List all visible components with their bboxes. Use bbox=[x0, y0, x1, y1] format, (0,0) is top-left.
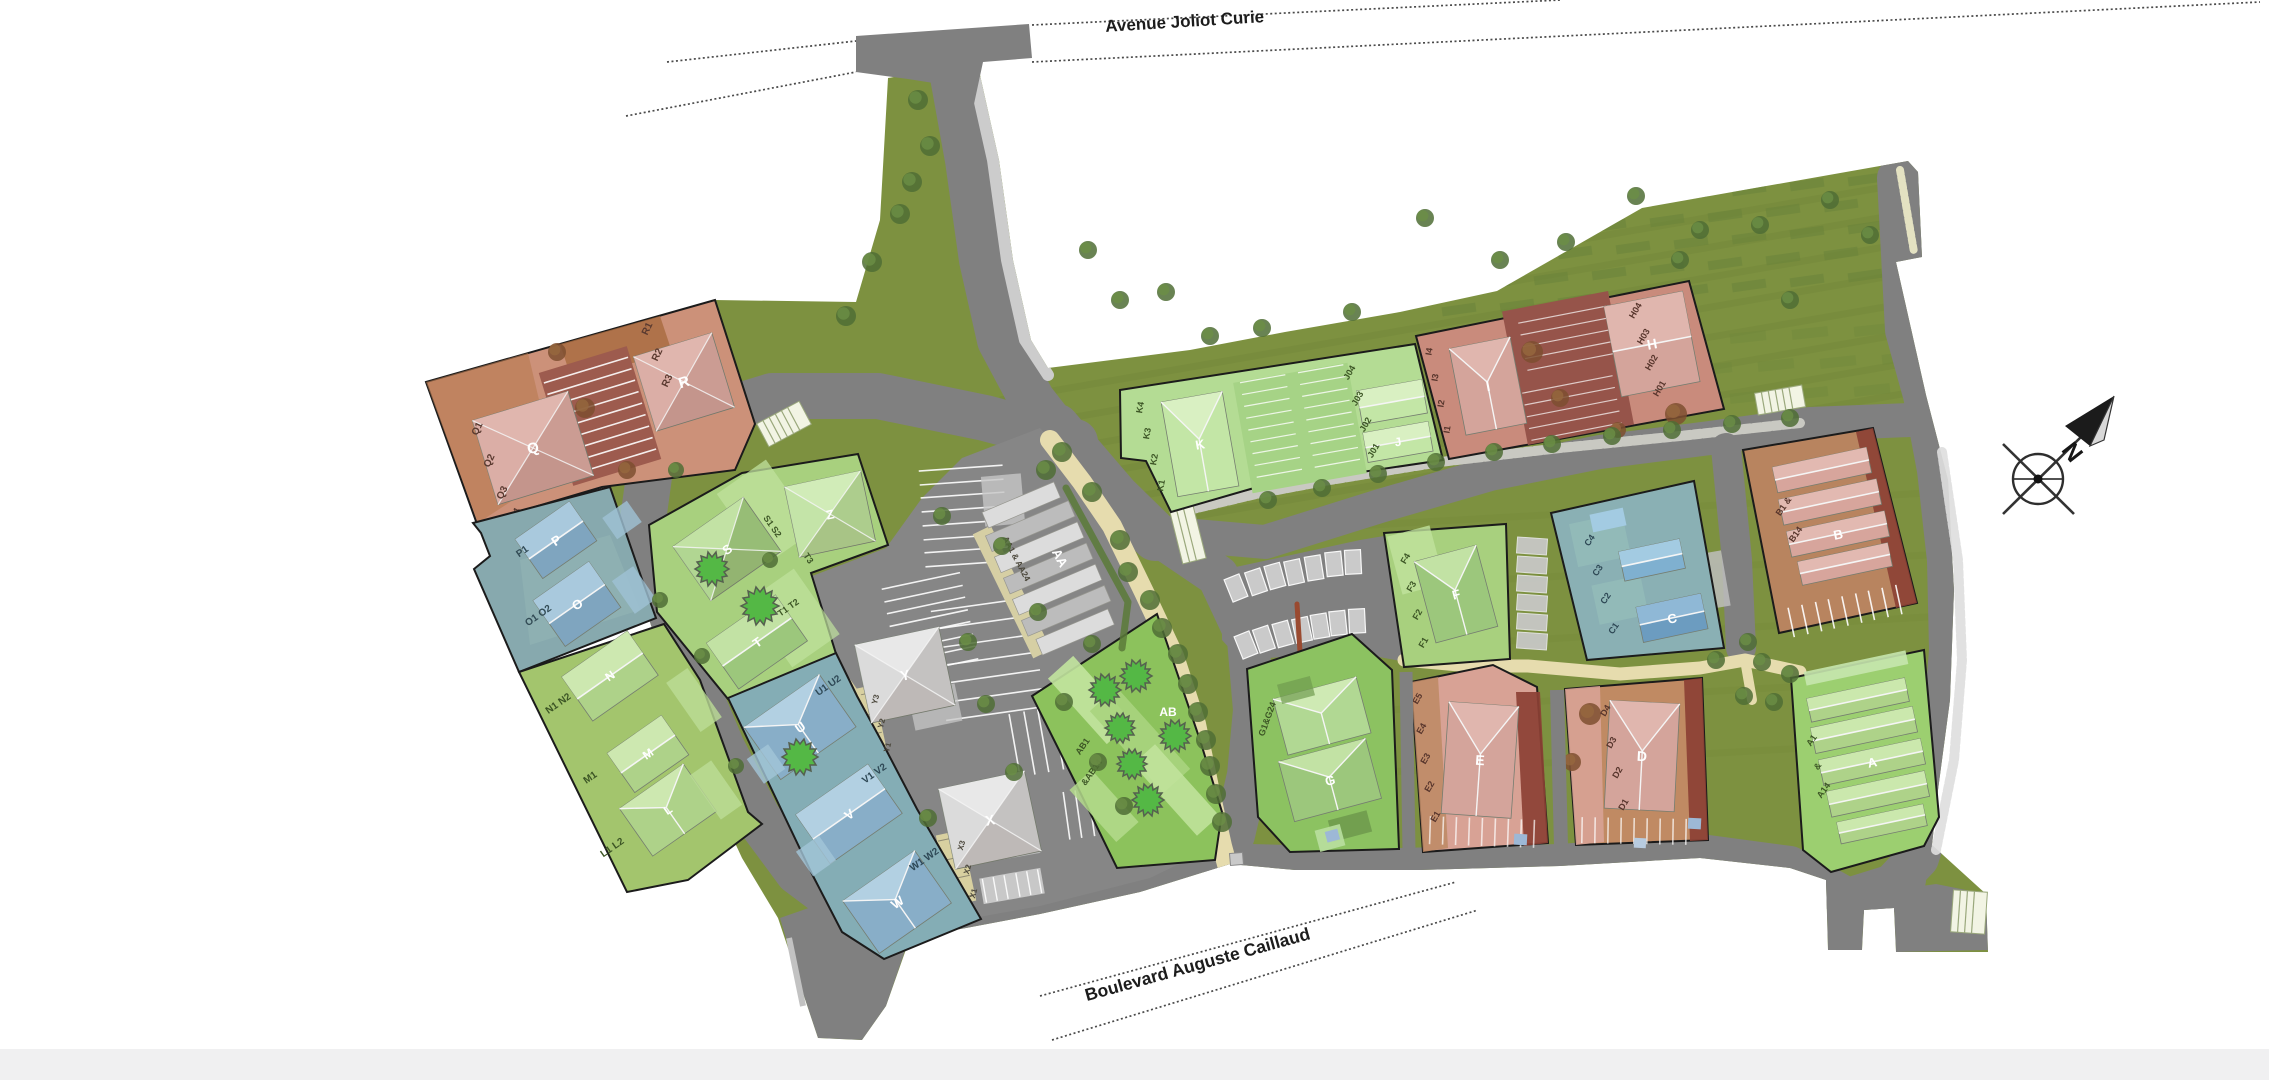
svg-text:AB: AB bbox=[1159, 705, 1177, 719]
svg-text:K2: K2 bbox=[1148, 453, 1160, 466]
svg-text:K4: K4 bbox=[1134, 401, 1146, 414]
svg-text:E: E bbox=[1475, 752, 1485, 769]
svg-text:D: D bbox=[1637, 748, 1648, 765]
svg-text:K3: K3 bbox=[1141, 427, 1153, 440]
svg-text:K1: K1 bbox=[1155, 479, 1167, 492]
